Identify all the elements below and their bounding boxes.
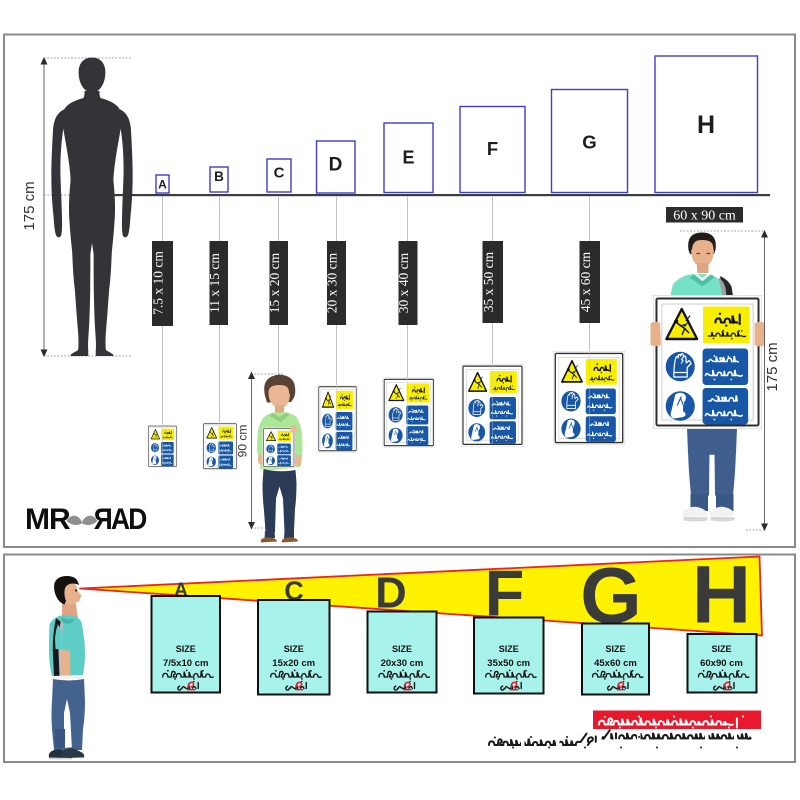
svg-text:20 x 30 cm: 20 x 30 cm [325,252,340,313]
svg-text:35 x 50 cm: 35 x 50 cm [481,251,496,312]
svg-text:175 cm: 175 cm [21,181,38,230]
svg-text:F: F [487,138,498,159]
svg-text:45x60 cm: 45x60 cm [594,658,637,669]
svg-text:20x30 cm: 20x30 cm [381,658,424,669]
svg-text:SIZE: SIZE [176,644,196,654]
svg-text:45 x 60 cm: 45 x 60 cm [578,251,593,312]
svg-text:H: H [697,111,715,139]
svg-text:SIZE: SIZE [284,644,304,654]
svg-text:15x20 cm: 15x20 cm [272,658,315,669]
svg-text:SIZE: SIZE [605,644,625,654]
svg-text:C: C [274,165,285,182]
svg-text:15 x 20 cm: 15 x 20 cm [267,252,282,313]
svg-text:30 x 40 cm: 30 x 40 cm [396,252,411,313]
svg-text:A: A [158,178,167,192]
svg-text:B: B [214,169,224,184]
svg-text:35x50 cm: 35x50 cm [487,658,530,669]
svg-text:ЯAD: ЯAD [94,501,147,535]
svg-text:D: D [375,570,406,618]
svg-text:H: H [692,550,751,641]
svg-text:7/5x10 cm: 7/5x10 cm [163,658,208,669]
svg-text:175 cm: 175 cm [764,342,781,391]
svg-text:7.5 x 10 cm: 7.5 x 10 cm [151,251,166,315]
svg-text:MR: MR [25,503,71,536]
svg-text:E: E [402,148,414,168]
svg-text:60 x 90 cm: 60 x 90 cm [673,209,736,224]
svg-text:SIZE: SIZE [499,644,519,654]
svg-text:11 x 15 cm: 11 x 15 cm [207,253,222,313]
svg-text:SIZE: SIZE [392,644,412,654]
svg-text:90 cm: 90 cm [236,425,250,458]
svg-text:D: D [329,155,343,176]
svg-text:G: G [582,132,596,153]
svg-text:SIZE: SIZE [711,644,731,654]
svg-text:60x90 cm: 60x90 cm [700,658,743,669]
